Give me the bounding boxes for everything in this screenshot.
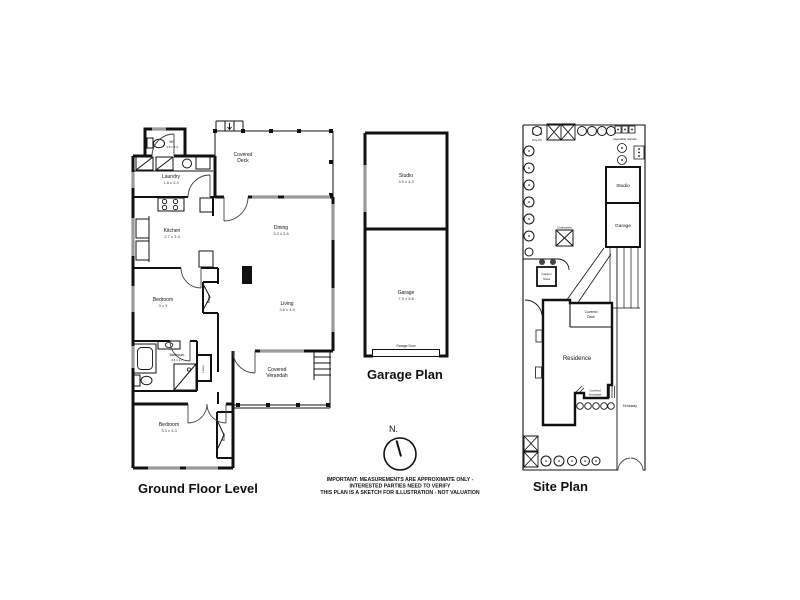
clothesline-label: Clothesline bbox=[557, 226, 572, 230]
vegetable-garden-label: Vegetable Garden bbox=[613, 137, 638, 141]
garden-bed-boxes-top bbox=[547, 124, 575, 140]
bathroom-label: Bathroom bbox=[170, 353, 185, 357]
clothesline-box bbox=[556, 230, 573, 246]
site-garage-label: Garage bbox=[615, 223, 631, 229]
shed-shrub bbox=[539, 259, 545, 265]
compass-needle bbox=[397, 441, 402, 457]
fire-pit-circle bbox=[533, 127, 542, 136]
covered-deck-label-line2: Deck bbox=[237, 158, 249, 164]
kitchen-dims: 2.7 x 3.3 bbox=[164, 234, 180, 239]
north-arrow: N. bbox=[384, 424, 416, 470]
disclaimer-line1: IMPORTANT: MEASUREMENTS ARE APPROXIMATE … bbox=[327, 477, 474, 483]
garden-shed-label-line1: Garden bbox=[541, 272, 551, 276]
disclaimer-line3: THIS PLAN IS A SKETCH FOR ILLUSTRATION -… bbox=[320, 490, 480, 496]
vanity-basin bbox=[165, 343, 173, 348]
plan-canvas: WC 1.6 x 2.4 Laundry 1.8 x 3.4 Covered D… bbox=[0, 0, 800, 600]
wc-label: WC bbox=[169, 140, 175, 144]
bottom-trees bbox=[541, 456, 600, 466]
stove-burner bbox=[162, 205, 166, 209]
stove-burner bbox=[162, 199, 166, 203]
bedroom2-dims: 3.3 x 3.3 bbox=[161, 428, 177, 433]
laundry-dims: 1.8 x 3.4 bbox=[163, 180, 179, 185]
residence-label: Residence bbox=[563, 356, 592, 362]
stove-burner bbox=[173, 205, 177, 209]
north-label: N. bbox=[389, 424, 398, 434]
driveway-label: Driveway bbox=[623, 404, 637, 408]
bedroom1-dims: 3 x 3 bbox=[159, 303, 168, 308]
covered-verandah-label-line2: Verandah bbox=[266, 373, 288, 379]
ground-floor-title: Ground Floor Level bbox=[138, 481, 258, 496]
site-deck-label-line1: Covered bbox=[585, 310, 598, 314]
deck-posts bbox=[213, 129, 333, 407]
stove-burner bbox=[173, 199, 177, 203]
garage-exterior-walls bbox=[365, 133, 447, 356]
ac-units bbox=[536, 330, 543, 378]
fire-pit-label: Fire Pit bbox=[532, 138, 542, 142]
studio-dims: 3.5 x 4.3 bbox=[398, 179, 414, 184]
site-plan: Fire Pit Vegetable Garden Studio Garage … bbox=[523, 124, 645, 494]
residence-outline bbox=[543, 300, 612, 425]
dining-dims: 3.2 x 3.6 bbox=[273, 231, 289, 236]
top-trees bbox=[578, 127, 616, 136]
driveway-gates bbox=[618, 458, 643, 470]
bottom-planter-boxes bbox=[524, 436, 538, 467]
wc-toilet-bowl bbox=[154, 139, 165, 147]
left-boundary-trees bbox=[524, 146, 534, 256]
vegetable-garden-beds bbox=[615, 126, 644, 165]
floorplan-sheet: WC 1.6 x 2.4 Laundry 1.8 x 3.4 Covered D… bbox=[0, 0, 800, 600]
shed-shrub bbox=[550, 259, 556, 265]
robe1-label: Robe bbox=[207, 295, 211, 304]
site-shrub-row bbox=[577, 403, 615, 410]
site-deck-label-line2: Deck bbox=[587, 315, 595, 319]
diagonal-walkway bbox=[566, 248, 611, 304]
gf-interior-walls bbox=[133, 197, 233, 458]
disclaimer-block: IMPORTANT: MEASUREMENTS ARE APPROXIMATE … bbox=[320, 477, 480, 496]
site-plan-title: Site Plan bbox=[533, 479, 588, 494]
garage-plan-title: Garage Plan bbox=[367, 367, 443, 382]
shower-head bbox=[187, 368, 190, 371]
garden-shed-label-line2: Shed bbox=[543, 277, 550, 281]
laundry-sink bbox=[183, 159, 192, 168]
garage-dims: 7.5 x 3.8 bbox=[398, 296, 414, 301]
fireplace bbox=[242, 266, 252, 284]
concrete-path-stripes bbox=[606, 247, 640, 308]
site-verandah-label-line2: Verandah bbox=[589, 393, 602, 397]
bathroom-dims: 2.4 x 2.7 bbox=[171, 358, 183, 362]
robe2-label: Robe bbox=[222, 433, 226, 442]
garage-plan: Studio 3.5 x 4.3 Garage 7.5 x 3.8 Garage… bbox=[365, 133, 447, 382]
garage-door-label: Garage Door bbox=[396, 344, 416, 348]
bathroom-toilet-bowl bbox=[141, 376, 152, 384]
ground-floor-plan: WC 1.6 x 2.4 Laundry 1.8 x 3.4 Covered D… bbox=[133, 121, 333, 496]
site-studio-label: Studio bbox=[616, 183, 630, 189]
linen-label: Linen bbox=[201, 365, 205, 373]
wc-dims: 1.6 x 2.4 bbox=[166, 145, 178, 149]
fire-pit-dots bbox=[533, 128, 541, 134]
garage-door-panel bbox=[373, 350, 440, 357]
bathtub-inner bbox=[138, 348, 153, 370]
disclaimer-line2: INTERESTED PARTIES NEED TO VERIFY bbox=[350, 484, 452, 490]
living-dims: 3.6 x 3.9 bbox=[279, 307, 295, 312]
